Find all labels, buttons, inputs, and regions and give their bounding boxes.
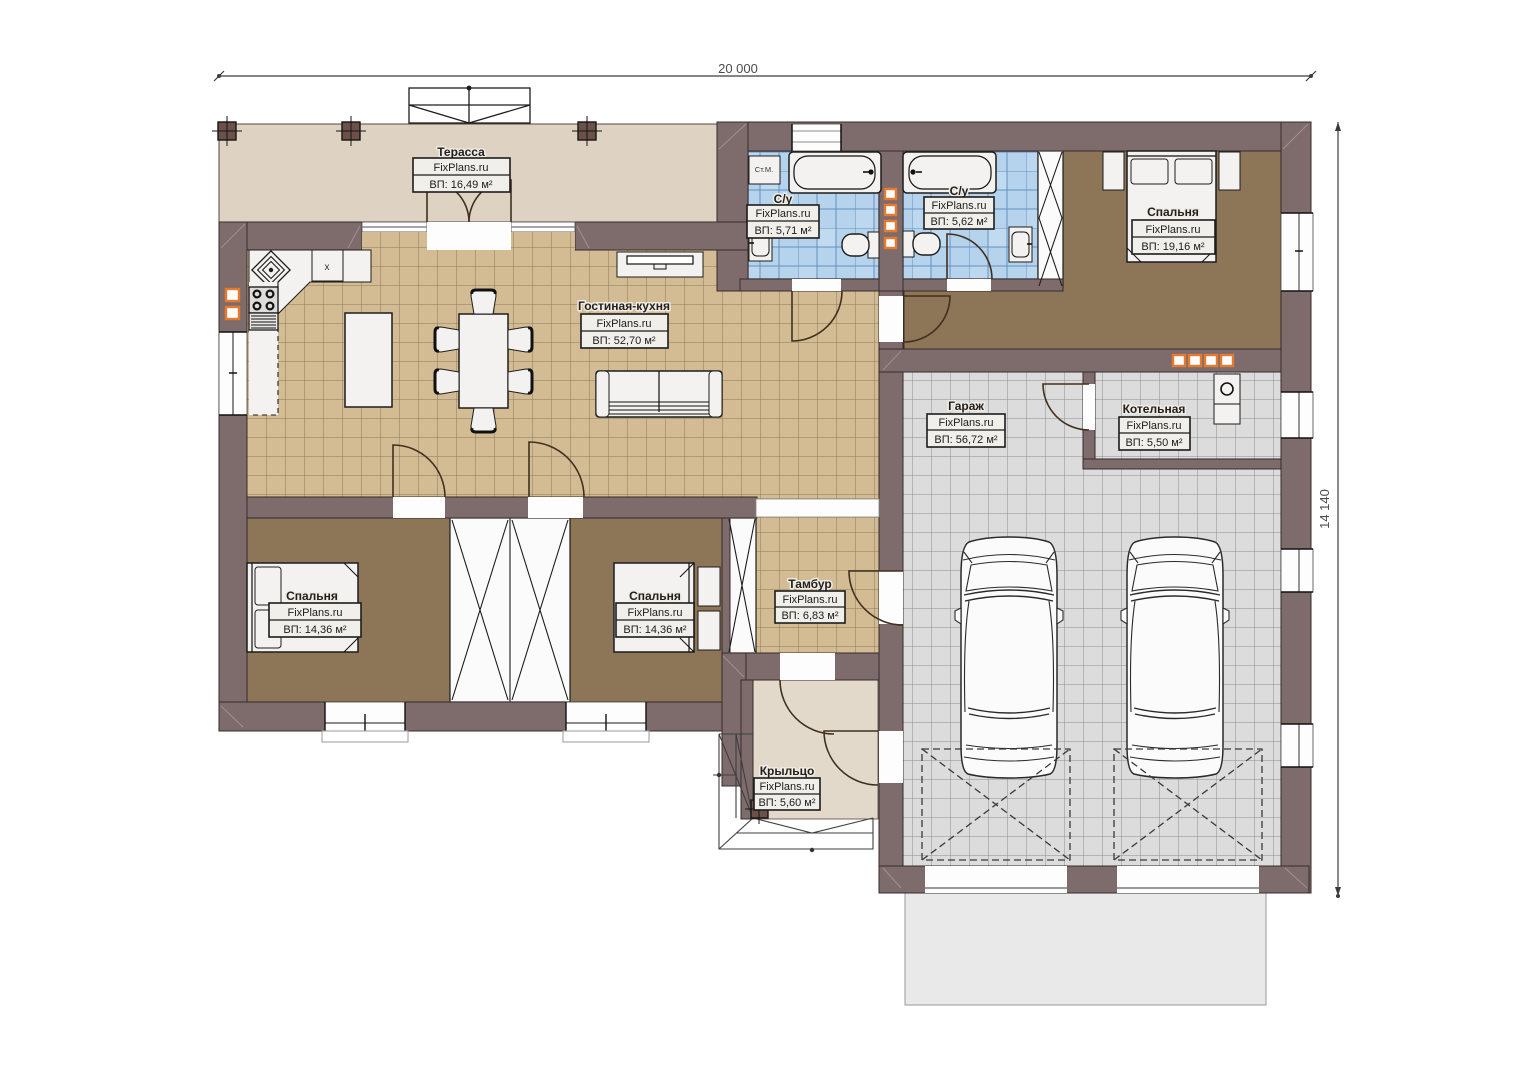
svg-text:FixPlans.ru: FixPlans.ru (938, 417, 993, 429)
svg-text:Котельная: Котельная (1123, 402, 1186, 416)
svg-text:FixPlans.ru: FixPlans.ru (755, 208, 810, 220)
svg-text:Крыльцо: Крыльцо (760, 764, 815, 778)
svg-text:Спальня: Спальня (1147, 205, 1199, 219)
svg-text:x: x (325, 262, 330, 273)
svg-text:FixPlans.ru: FixPlans.ru (627, 607, 682, 619)
svg-text:FixPlans.ru: FixPlans.ru (1145, 224, 1200, 236)
svg-text:ВП: 14,36 м²: ВП: 14,36 м² (623, 624, 687, 636)
svg-text:FixPlans.ru: FixPlans.ru (931, 200, 986, 212)
svg-text:Терасса: Терасса (437, 145, 485, 159)
svg-text:FixPlans.ru: FixPlans.ru (782, 594, 837, 606)
svg-text:ВП: 52,70 м²: ВП: 52,70 м² (592, 335, 656, 347)
svg-text:ВП: 5,60 м²: ВП: 5,60 м² (758, 797, 815, 809)
svg-text:Гостиная-кухня: Гостиная-кухня (578, 299, 670, 313)
svg-text:14 140: 14 140 (1317, 489, 1332, 529)
svg-text:FixPlans.ru: FixPlans.ru (596, 318, 651, 330)
svg-text:ВП: 6,83 м²: ВП: 6,83 м² (781, 610, 838, 622)
svg-text:ВП: 5,71 м²: ВП: 5,71 м² (754, 225, 811, 237)
svg-text:ВП: 5,62 м²: ВП: 5,62 м² (930, 216, 987, 228)
svg-text:Спальня: Спальня (629, 589, 681, 603)
svg-text:Спальня: Спальня (286, 589, 338, 603)
svg-text:ВП: 19,16 м²: ВП: 19,16 м² (1141, 241, 1205, 253)
svg-text:FixPlans.ru: FixPlans.ru (1126, 420, 1181, 432)
svg-text:ВП: 56,72 м²: ВП: 56,72 м² (934, 434, 998, 446)
svg-text:FixPlans.ru: FixPlans.ru (433, 162, 488, 174)
svg-text:ВП: 16,49 м²: ВП: 16,49 м² (429, 179, 493, 191)
svg-text:ВП: 5,50 м²: ВП: 5,50 м² (1125, 437, 1182, 449)
svg-text:20 000: 20 000 (718, 61, 758, 76)
svg-text:FixPlans.ru: FixPlans.ru (759, 781, 814, 793)
svg-text:ВП: 14,36 м²: ВП: 14,36 м² (283, 624, 347, 636)
svg-text:Ст.М.: Ст.М. (755, 165, 773, 174)
svg-text:Гараж: Гараж (948, 399, 984, 413)
svg-text:С/у: С/у (774, 192, 793, 206)
svg-text:С/у: С/у (950, 184, 969, 198)
svg-text:FixPlans.ru: FixPlans.ru (287, 607, 342, 619)
svg-text:Тамбур: Тамбур (788, 577, 832, 591)
